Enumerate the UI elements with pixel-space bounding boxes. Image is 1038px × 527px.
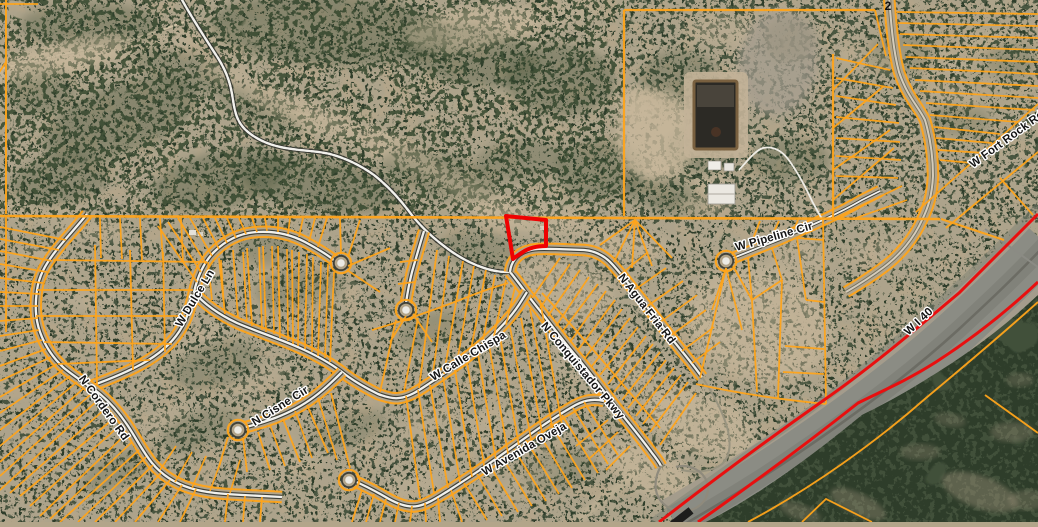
- svg-text:2: 2: [885, 0, 892, 13]
